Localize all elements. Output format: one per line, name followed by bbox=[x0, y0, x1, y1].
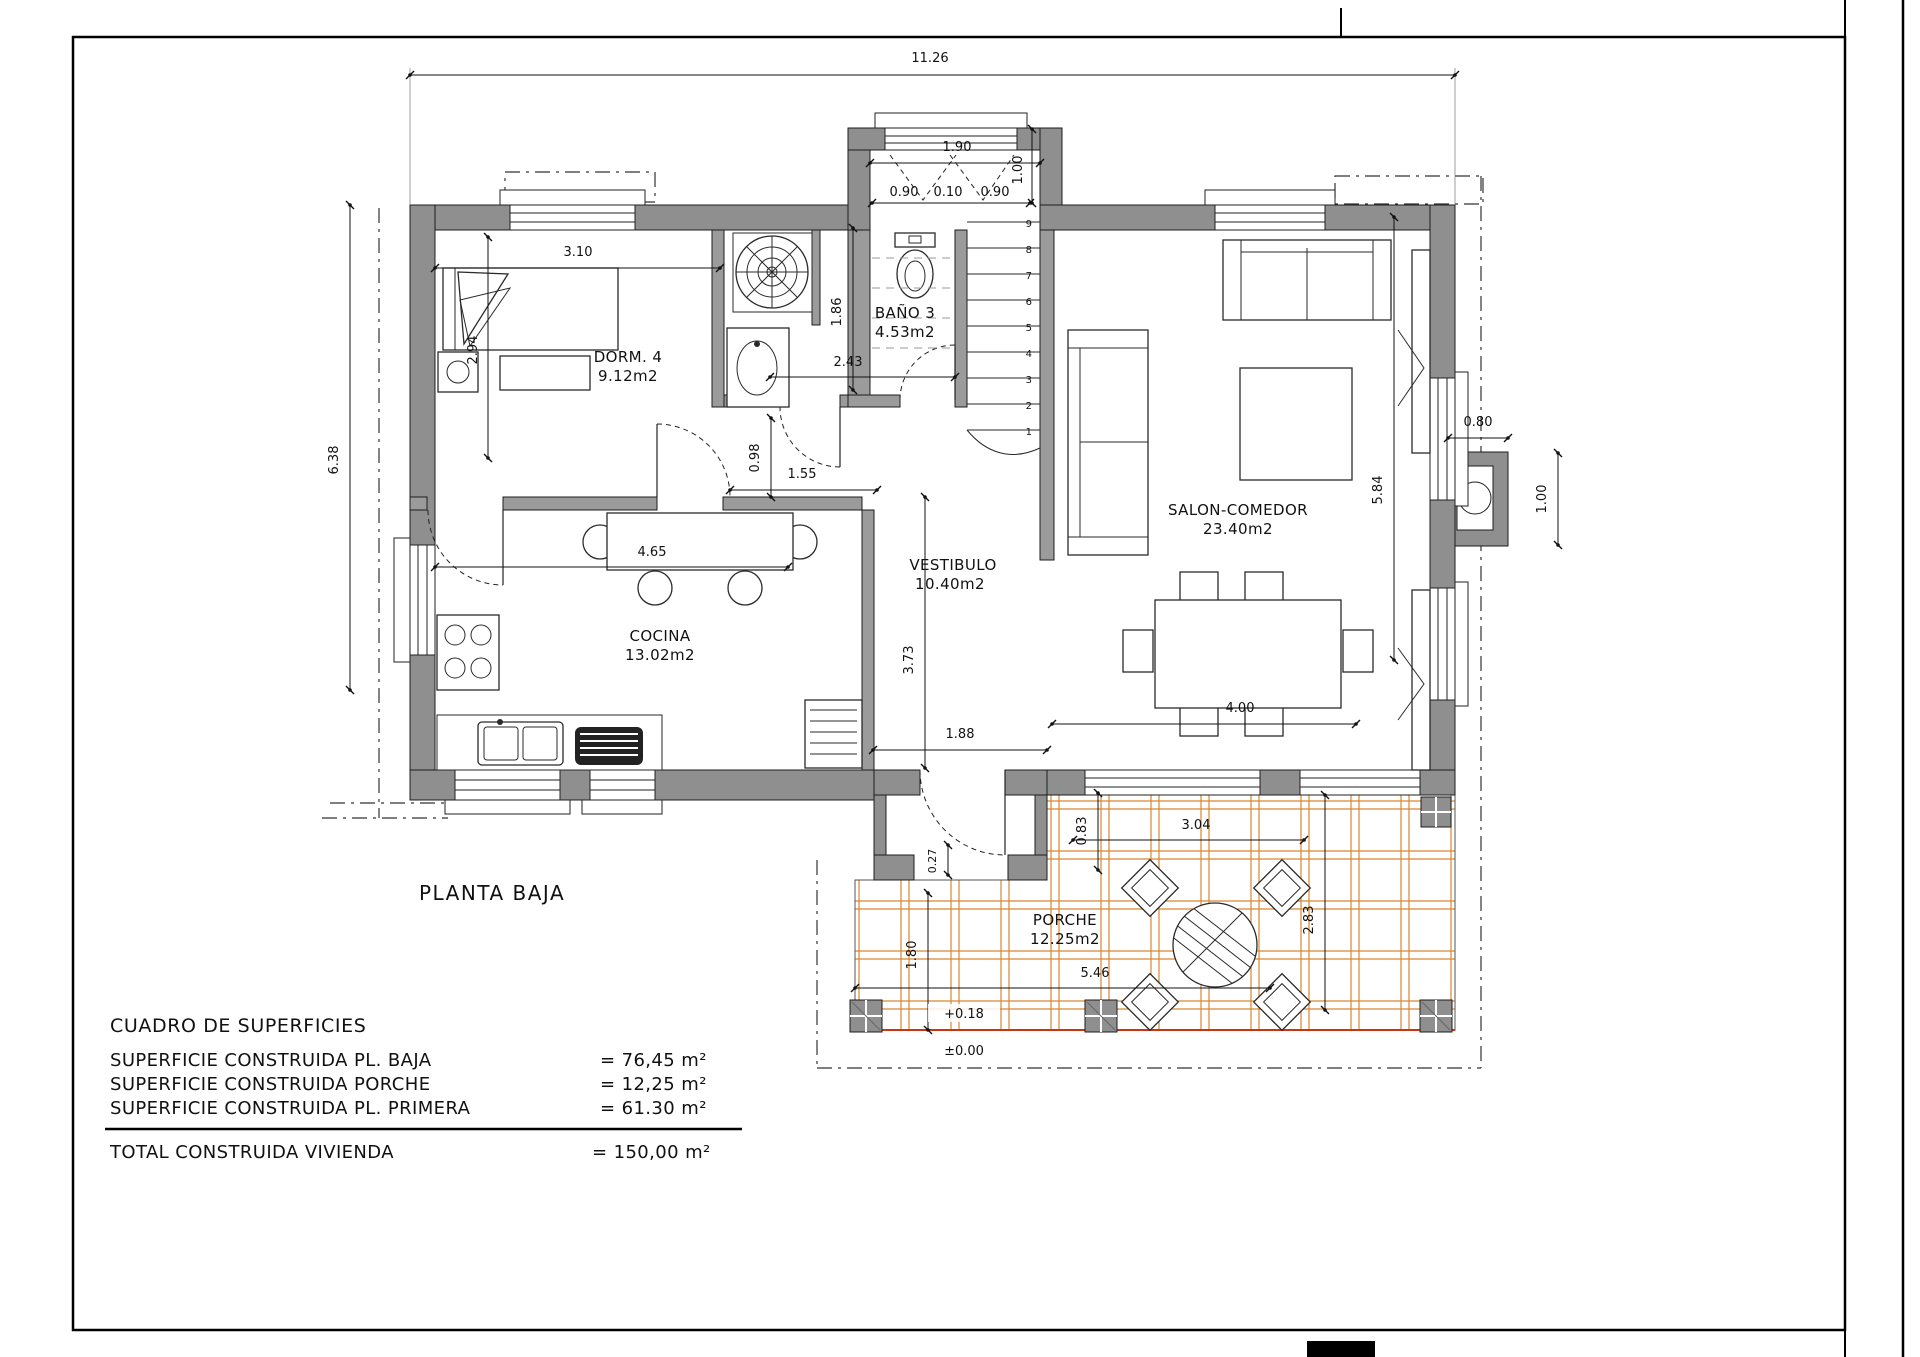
room-label-dorm: DORM. 4 bbox=[594, 348, 663, 366]
room-label-porche: PORCHE bbox=[1033, 911, 1097, 929]
door-entry bbox=[920, 770, 1005, 855]
sofa-left bbox=[1068, 330, 1148, 555]
dim-bump-width: 1.90 bbox=[943, 140, 972, 155]
dim-dorm-depth: 2.94 bbox=[466, 336, 481, 365]
tv-unit bbox=[1398, 250, 1430, 770]
dim-chimney-width: 0.80 bbox=[1464, 415, 1493, 430]
dim-bath-height: 1.86 bbox=[830, 298, 845, 327]
staircase: 1 2 3 4 5 6 7 8 9 bbox=[967, 219, 1040, 454]
shower bbox=[733, 233, 812, 312]
door-dorm bbox=[657, 424, 730, 497]
dim-salon-height: 5.84 bbox=[1371, 476, 1386, 505]
plan-title: PLANTA BAJA bbox=[419, 881, 565, 905]
stove bbox=[437, 615, 499, 690]
sofa-top bbox=[1223, 240, 1391, 320]
summary-total-value: = 150,00 m² bbox=[592, 1142, 711, 1163]
drain-board bbox=[575, 727, 643, 765]
kitchen-table bbox=[583, 513, 817, 605]
dim-entry-step: 0.27 bbox=[926, 849, 939, 874]
step-number: 3 bbox=[1026, 375, 1032, 386]
summary-title: CUADRO DE SUPERFICIES bbox=[110, 1015, 366, 1037]
dim-porch-depth: 2.83 bbox=[1302, 906, 1317, 935]
summary-row-value: = 76,45 m² bbox=[600, 1050, 707, 1071]
window-salon-porch bbox=[1085, 770, 1420, 795]
dim-bump-height: 1.00 bbox=[1011, 156, 1026, 185]
dim-dorm-width: 3.10 bbox=[564, 245, 593, 260]
dim-window-left: 0.90 bbox=[890, 185, 919, 200]
bed-bench bbox=[500, 356, 590, 390]
step-number: 4 bbox=[1026, 349, 1032, 360]
window-salon-top bbox=[1205, 190, 1335, 230]
level-ground: ±0.00 bbox=[944, 1044, 984, 1059]
window-dorm-top bbox=[500, 190, 645, 230]
stair-step-numbers: 1 2 3 4 5 6 7 8 9 bbox=[1026, 219, 1032, 438]
window-awning-dashed bbox=[1335, 176, 1483, 204]
dim-vestibule-depth: 3.73 bbox=[902, 646, 917, 675]
step-number: 5 bbox=[1026, 323, 1032, 334]
door-bath-hall bbox=[780, 407, 840, 467]
coffee-table bbox=[1240, 368, 1352, 480]
summary-total-label: TOTAL CONSTRUIDA VIVIENDA bbox=[109, 1142, 394, 1163]
washbasin bbox=[727, 328, 789, 407]
dim-porch-left: 1.80 bbox=[905, 941, 920, 970]
kitchen-sink bbox=[437, 715, 662, 770]
step-number: 9 bbox=[1026, 219, 1032, 230]
step-number: 7 bbox=[1026, 271, 1032, 282]
room-area-vestibulo: 10.40m2 bbox=[915, 575, 985, 593]
dim-window-mid: 0.10 bbox=[934, 185, 963, 200]
door-cocina bbox=[428, 510, 503, 585]
dim-entry-width: 1.88 bbox=[946, 727, 975, 742]
dim-window-right: 0.90 bbox=[981, 185, 1010, 200]
room-area-salon: 23.40m2 bbox=[1203, 520, 1273, 538]
room-area-bano: 4.53m2 bbox=[875, 323, 935, 341]
summary-row-label: SUPERFICIE CONSTRUIDA PORCHE bbox=[110, 1074, 430, 1095]
dim-porch-bay: 3.04 bbox=[1182, 818, 1211, 833]
bottom-register-bar bbox=[1307, 1341, 1375, 1357]
step-number: 6 bbox=[1026, 297, 1032, 308]
window-kitchen-left bbox=[394, 538, 435, 662]
window-kitchen-bottom bbox=[445, 770, 662, 814]
room-label-bano: BAÑO 3 bbox=[875, 303, 935, 322]
dim-porch-notch: 0.83 bbox=[1075, 817, 1090, 846]
room-area-dorm: 9.12m2 bbox=[598, 367, 658, 385]
room-label-cocina: COCINA bbox=[629, 627, 690, 645]
dim-chimney-height: 1.00 bbox=[1535, 485, 1550, 514]
room-label-salon: SALON-COMEDOR bbox=[1168, 501, 1308, 519]
step-number: 2 bbox=[1026, 401, 1032, 412]
room-area-cocina: 13.02m2 bbox=[625, 646, 695, 664]
dim-left-height: 6.38 bbox=[327, 446, 342, 475]
step-number: 1 bbox=[1026, 427, 1032, 438]
dim-bath-width: 2.43 bbox=[834, 355, 863, 370]
door-bano bbox=[900, 345, 955, 400]
step-number: 8 bbox=[1026, 245, 1032, 256]
summary-row-value: = 12,25 m² bbox=[600, 1074, 707, 1095]
kitchen-appliance bbox=[805, 700, 862, 768]
surface-summary-table: CUADRO DE SUPERFICIES SUPERFICIE CONSTRU… bbox=[105, 1015, 742, 1163]
summary-row-value: = 61.30 m² bbox=[600, 1098, 707, 1119]
room-area-porche: 12.25m2 bbox=[1030, 930, 1100, 948]
dim-total-width: 11.26 bbox=[911, 51, 948, 66]
dim-dining-width: 4.00 bbox=[1226, 701, 1255, 716]
summary-row-label: SUPERFICIE CONSTRUIDA PL. BAJA bbox=[110, 1050, 432, 1071]
level-porch: +0.18 bbox=[944, 1007, 984, 1022]
dim-hall-depth: 0.98 bbox=[748, 444, 763, 473]
dim-kitchen-width: 4.65 bbox=[638, 545, 667, 560]
dim-porch-width: 5.46 bbox=[1081, 966, 1110, 981]
summary-row-label: SUPERFICIE CONSTRUIDA PL. PRIMERA bbox=[110, 1098, 471, 1119]
floor-plan-drawing: 1 2 3 4 5 6 7 8 9 bbox=[0, 0, 1920, 1357]
dim-hall-width: 1.55 bbox=[788, 467, 817, 482]
floor-plan-sheet: 1 2 3 4 5 6 7 8 9 bbox=[0, 0, 1920, 1357]
room-label-vestibulo: VESTIBULO bbox=[909, 556, 996, 574]
